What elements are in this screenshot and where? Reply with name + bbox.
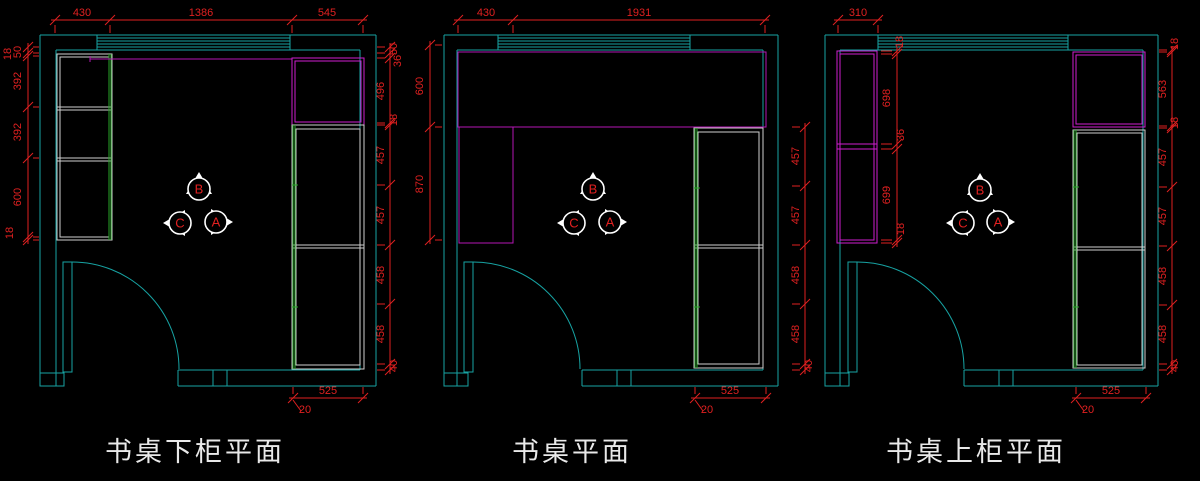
dim-label: 545 xyxy=(318,7,336,19)
dim-label: 392 xyxy=(12,123,24,141)
dim-label: 457 xyxy=(375,206,387,224)
plan-caption: 书桌上柜平面 xyxy=(886,437,1066,467)
dim-chain-right: 185631845745745845840 xyxy=(1157,38,1181,375)
left-upper-cabinet-inner xyxy=(840,54,874,240)
dim-chain-bottom: 52520 xyxy=(288,385,368,416)
view-marker-B: B xyxy=(580,172,606,200)
wall-stub xyxy=(825,373,849,386)
door-leaf xyxy=(464,262,473,372)
dim-label: 392 xyxy=(12,72,24,90)
dim-label: 50 xyxy=(388,43,400,55)
dim-label: 457 xyxy=(790,206,802,224)
dim-label: 430 xyxy=(477,7,495,19)
left-cabinet xyxy=(57,54,112,240)
dim-label: 18 xyxy=(894,36,906,48)
view-marker-letter: B xyxy=(195,182,204,197)
right-cabinet-inner xyxy=(1077,133,1142,365)
dim-label: 457 xyxy=(790,147,802,165)
view-marker-A: A xyxy=(599,209,627,235)
dim-label: 496 xyxy=(375,82,387,100)
view-marker-A: A xyxy=(205,209,233,235)
dim-label: 18 xyxy=(388,114,400,126)
view-marker-letter: C xyxy=(958,216,967,231)
desk-return xyxy=(459,127,513,243)
dim-label: 458 xyxy=(1157,267,1169,285)
plan-caption: 书桌下柜平面 xyxy=(105,437,285,467)
wall-stub xyxy=(40,373,64,386)
door-swing-arc xyxy=(473,262,580,369)
view-marker-A: A xyxy=(987,209,1015,235)
view-marker-C: C xyxy=(946,210,974,236)
dim-label: 698 xyxy=(881,89,893,107)
dim-label: 40 xyxy=(803,360,815,372)
cad-drawing: 4301386545501839239260018503649618457457… xyxy=(0,0,1200,481)
dim-label: 18 xyxy=(1169,38,1181,50)
door-leaf xyxy=(848,262,857,372)
dim-chain-right: 45745745845840 xyxy=(790,122,815,375)
dim-chain-left: 501839239260018 xyxy=(2,42,39,245)
dim-label: 458 xyxy=(790,266,802,284)
door-leaf xyxy=(63,262,72,372)
upper-box xyxy=(1073,52,1145,127)
dim-label: 36 xyxy=(895,129,907,141)
view-marker-letter: A xyxy=(212,215,221,230)
dim-chain-top: 310 xyxy=(833,7,883,33)
desk-plan: 43019316008704574574584584052520BCA书桌平面 xyxy=(414,7,815,467)
upper-box-inner xyxy=(295,61,361,122)
door-swing-arc xyxy=(72,262,179,369)
dim-label: 457 xyxy=(375,146,387,164)
view-marker-letter: A xyxy=(606,215,615,230)
view-marker-B: B xyxy=(967,173,993,201)
dim-chain-bottom: 52520 xyxy=(1071,385,1151,416)
dim-label: 600 xyxy=(12,188,24,206)
dim-label: 699 xyxy=(881,186,893,204)
dim-label: 18 xyxy=(4,227,16,239)
view-marker-B: B xyxy=(186,172,212,200)
dim-label: 525 xyxy=(721,385,739,397)
dim-chain-left: 600870 xyxy=(414,40,442,245)
dim-label: 40 xyxy=(1169,360,1181,372)
dim-label: 40 xyxy=(388,360,400,372)
dim-label: 1931 xyxy=(627,7,651,19)
dim-label: 525 xyxy=(1102,385,1120,397)
dim-chain-top: 4301931 xyxy=(453,7,770,33)
dim-chain-inner-left: 186983669918 xyxy=(881,36,907,248)
dim-chain-top: 4301386545 xyxy=(50,7,368,33)
dim-label: 1386 xyxy=(189,7,213,19)
view-marker-letter: C xyxy=(175,216,184,231)
view-marker-letter: B xyxy=(976,183,985,198)
dim-label: 458 xyxy=(1157,325,1169,343)
left-cabinet-inner xyxy=(60,57,109,237)
view-marker-C: C xyxy=(163,210,191,236)
view-marker-letter: C xyxy=(569,216,578,231)
dim-label: 18 xyxy=(1169,117,1181,129)
dim-label: 457 xyxy=(1157,207,1169,225)
dim-label: 18 xyxy=(2,48,14,60)
dim-label: 36 xyxy=(392,55,404,67)
left-upper-cabinet xyxy=(837,51,877,243)
dim-label: 563 xyxy=(1157,80,1169,98)
view-marker-C: C xyxy=(557,210,585,236)
cad-canvas: 4301386545501839239260018503649618457457… xyxy=(0,0,1200,481)
dim-label: 458 xyxy=(375,325,387,343)
right-cabinet xyxy=(1073,130,1145,368)
plan-caption: 书桌平面 xyxy=(512,437,632,467)
dim-label: 600 xyxy=(414,77,426,95)
dim-label: 18 xyxy=(895,223,907,235)
desk-lower-cabinet-plan: 4301386545501839239260018503649618457457… xyxy=(2,7,404,467)
dim-label: 458 xyxy=(790,325,802,343)
dim-label: 458 xyxy=(375,266,387,284)
upper-box-inner xyxy=(1076,55,1142,124)
right-cabinet xyxy=(292,125,364,369)
dim-label: 310 xyxy=(849,7,867,19)
upper-box xyxy=(292,58,364,125)
dim-label: 430 xyxy=(73,7,91,19)
right-cabinet-inner xyxy=(296,129,360,365)
desk-top xyxy=(458,52,766,127)
dim-chain-right: 50364961845745745845840 xyxy=(375,42,404,375)
dim-label: 525 xyxy=(319,385,337,397)
wall-stub xyxy=(444,373,468,386)
dim-label: 457 xyxy=(1157,148,1169,166)
view-marker-letter: B xyxy=(589,182,598,197)
dim-chain-bottom: 52520 xyxy=(690,385,771,416)
desk-upper-cabinet-plan: 3101869836699181856318457457458458405252… xyxy=(825,7,1181,467)
view-marker-letter: A xyxy=(994,215,1003,230)
door-swing-arc xyxy=(857,262,964,369)
dim-label: 870 xyxy=(414,175,426,193)
